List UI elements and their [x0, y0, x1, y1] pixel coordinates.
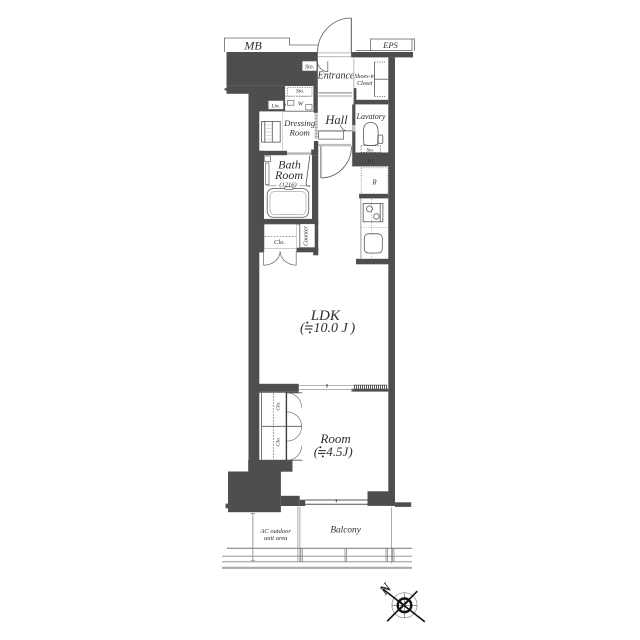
- svg-text:10.0 J ): 10.0 J ): [314, 321, 356, 336]
- svg-text:Balcony: Balcony: [330, 526, 361, 536]
- svg-text:R: R: [371, 179, 377, 187]
- svg-text:Sto.: Sto.: [305, 65, 314, 71]
- svg-text:unit area: unit area: [264, 535, 287, 542]
- svg-text:Clo.: Clo.: [276, 437, 282, 446]
- svg-text:Sto.: Sto.: [296, 89, 304, 95]
- svg-text:PS: PS: [366, 158, 375, 165]
- svg-text:Counter: Counter: [303, 226, 309, 246]
- svg-text:Lavatory: Lavatory: [356, 112, 386, 121]
- svg-text:MB: MB: [243, 39, 262, 53]
- svg-text:(: (: [314, 444, 319, 459]
- svg-text:Room: Room: [274, 168, 303, 182]
- svg-text:Sto.: Sto.: [366, 149, 374, 154]
- svg-text:EPS: EPS: [382, 40, 398, 50]
- svg-text:Hall: Hall: [324, 113, 348, 127]
- svg-text:Room: Room: [289, 128, 310, 138]
- svg-text:Clo.: Clo.: [274, 239, 285, 246]
- svg-text:W: W: [298, 101, 304, 108]
- svg-text:Closet: Closet: [357, 81, 373, 87]
- svg-text:Dressing: Dressing: [283, 118, 316, 128]
- svg-text:AC outdoor: AC outdoor: [259, 528, 291, 535]
- svg-text:Entrance: Entrance: [317, 71, 355, 82]
- svg-text:Shoes-in: Shoes-in: [354, 74, 375, 80]
- svg-text:4.5J): 4.5J): [326, 444, 352, 459]
- svg-text:Lin.: Lin.: [270, 103, 280, 109]
- svg-text:Clo.: Clo.: [276, 401, 282, 410]
